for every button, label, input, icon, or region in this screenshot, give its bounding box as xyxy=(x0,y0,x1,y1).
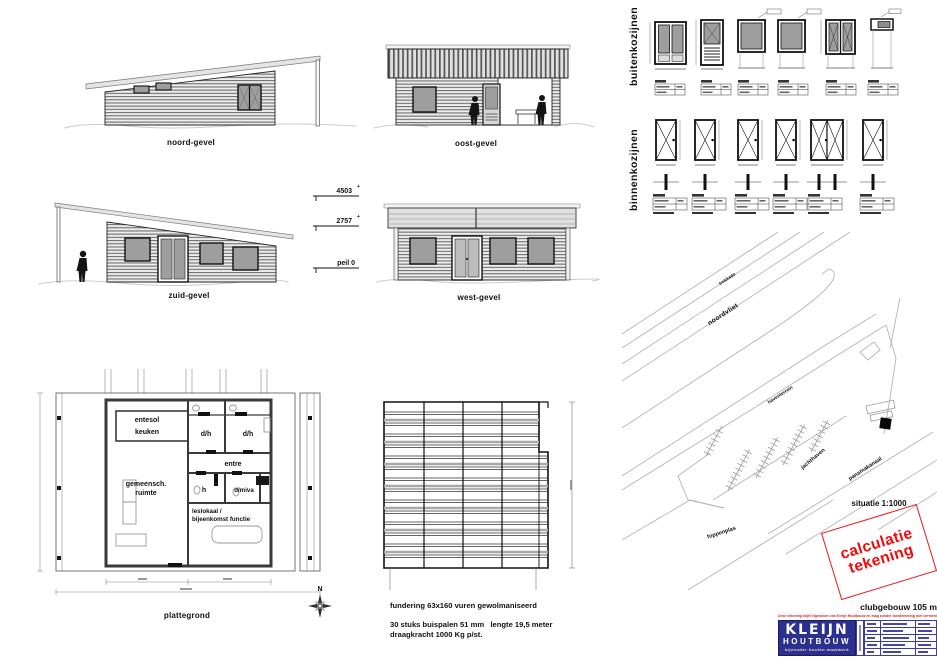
label-haventerrein: haventerrein xyxy=(767,385,794,406)
svg-text:peil 0: peil 0 xyxy=(337,260,355,267)
compass-rose: N xyxy=(308,586,332,618)
buitenkozijnen-strip: buitenkozijnen xyxy=(623,2,937,108)
noord-gevel-drawing: noord-gevel xyxy=(58,16,360,162)
height-dimension-mid: 2757 + xyxy=(313,214,360,231)
double-window xyxy=(238,85,261,110)
kozijn-window-fixed xyxy=(778,9,821,68)
roof-post xyxy=(57,207,60,282)
roof-post xyxy=(316,60,320,126)
fundering-note-1: fundering 63x160 vuren gewolmaniseerd xyxy=(390,601,640,611)
oost-gevel-label: oost-gevel xyxy=(455,139,497,148)
room-gemeenschap: gemeensch. xyxy=(126,481,167,488)
small-window xyxy=(156,83,171,90)
zuid-gevel-drawing: 4503 + 2757 + peil 0 zuid-gevel xyxy=(30,176,365,306)
height-dimension-top: 4503 + xyxy=(313,184,360,201)
kozijn-double-door xyxy=(650,22,686,69)
label-panamakanaal: panamakanaal xyxy=(848,456,884,482)
meterkast: mk xyxy=(256,476,269,485)
noord-gevel-label: noord-gevel xyxy=(167,138,215,147)
situatie-scale-label: situatie 1:1000 xyxy=(851,499,907,508)
roof-fascia-slats xyxy=(388,49,568,78)
buitenkozijnen-label: buitenkozijnen xyxy=(628,7,640,86)
titleblock-side-strip xyxy=(856,620,864,656)
kozijn-window-small xyxy=(871,9,901,68)
plattegrond-label: plattegrond xyxy=(164,611,210,620)
logo-name: KLEIJN xyxy=(785,623,848,637)
foundation-hook xyxy=(539,402,548,408)
site-buildings xyxy=(866,400,897,430)
double-door xyxy=(452,236,482,280)
kleijn-houtbouw-logo: KLEIJN HOUTBOUW bijzonder houten maatwer… xyxy=(778,620,856,656)
binnenkozijnen-strip: binnenkozijnen xyxy=(623,108,937,224)
fundering-drawing xyxy=(376,390,581,595)
binnenkozijnen-label: binnenkozijnen xyxy=(628,129,640,211)
window xyxy=(410,238,436,264)
window xyxy=(413,87,436,112)
roof-fascia xyxy=(388,208,576,228)
svg-text:+: + xyxy=(357,214,360,220)
height-dimension-ground: peil 0 xyxy=(313,260,359,273)
svg-text:mk: mk xyxy=(259,479,266,485)
oost-gevel-drawing: oost-gevel xyxy=(370,26,598,164)
titleblock: clubgebouw 105 m Deze tekening blijft ei… xyxy=(776,600,937,657)
room-entree: entre xyxy=(224,461,241,468)
room-dh-right: d/h xyxy=(243,431,254,438)
window xyxy=(200,243,223,264)
dimension-extensions xyxy=(105,369,267,393)
corner-post xyxy=(394,228,398,280)
small-window xyxy=(134,86,149,93)
fundering-note-3: draagkracht 1000 Kg p/st. xyxy=(390,630,640,640)
room-hal: h xyxy=(202,487,206,494)
project-title: clubgebouw 105 m xyxy=(860,602,937,612)
room-dh-left: d/h xyxy=(201,431,212,438)
logo-tagline: bijzonder houten maatwerk xyxy=(785,647,849,653)
west-gevel-drawing: west-gevel xyxy=(370,190,598,312)
kozijn-tables xyxy=(655,80,898,95)
room-dmiva: d/miva xyxy=(234,487,254,494)
clubgebouw-site-marker xyxy=(879,417,891,429)
double-door xyxy=(158,236,188,282)
site-labels: trekkade noordvliet haventerrein jachtha… xyxy=(707,271,908,540)
copyright-line: Deze tekening blijft eigendom van Kleijn… xyxy=(778,614,937,618)
window xyxy=(233,247,258,270)
kozijn-louvre-door xyxy=(696,20,723,69)
person-silhouette xyxy=(77,251,88,282)
window xyxy=(528,238,554,264)
svg-text:+: + xyxy=(357,184,360,190)
room-leslokaal2: bijeenkomst functie xyxy=(192,516,251,523)
window xyxy=(125,238,150,261)
label-trekkade: trekkade xyxy=(718,271,737,286)
binnen-tables xyxy=(653,194,894,214)
titleblock-table xyxy=(864,620,937,656)
door-plan-symbols xyxy=(653,174,886,190)
label-foppenplas: foppenplas xyxy=(707,526,737,541)
room-gemeenschap2: ruimte xyxy=(135,490,157,497)
svg-text:4503: 4503 xyxy=(336,188,352,195)
label-jachthaven: jachthaven xyxy=(799,447,826,471)
kozijn-window-casement xyxy=(821,20,855,68)
plattegrond-drawing: mk entesol keuken d/h d/h gemeensch. rui… xyxy=(28,368,346,636)
logo-subname: HOUTBOUW xyxy=(783,637,851,647)
room-leslokaal: leslokaal / xyxy=(192,508,222,515)
fundering-notes: fundering 63x160 vuren gewolmaniseerd 30… xyxy=(390,601,640,640)
room-entresol: entesol xyxy=(135,417,160,424)
room-keuken: keuken xyxy=(135,429,159,436)
compass-north-label: N xyxy=(317,586,322,593)
west-gevel-label: west-gevel xyxy=(457,293,501,302)
corner-post xyxy=(566,228,570,280)
kozijn-window-fixed xyxy=(738,9,781,68)
entrance-door xyxy=(483,84,500,125)
window xyxy=(490,238,516,264)
svg-text:2757: 2757 xyxy=(336,218,352,225)
fundering-note-2: 30 stuks buispalen 51 mm lengte 19,5 met… xyxy=(390,620,640,630)
binnen-double-door xyxy=(811,120,847,165)
roof-edge xyxy=(386,45,570,49)
zuid-gevel-label: zuid-gevel xyxy=(168,291,209,300)
drawing-sheet: noord-gevel xyxy=(0,0,937,657)
binnen-doors xyxy=(656,120,887,165)
roof-edge xyxy=(384,204,580,208)
